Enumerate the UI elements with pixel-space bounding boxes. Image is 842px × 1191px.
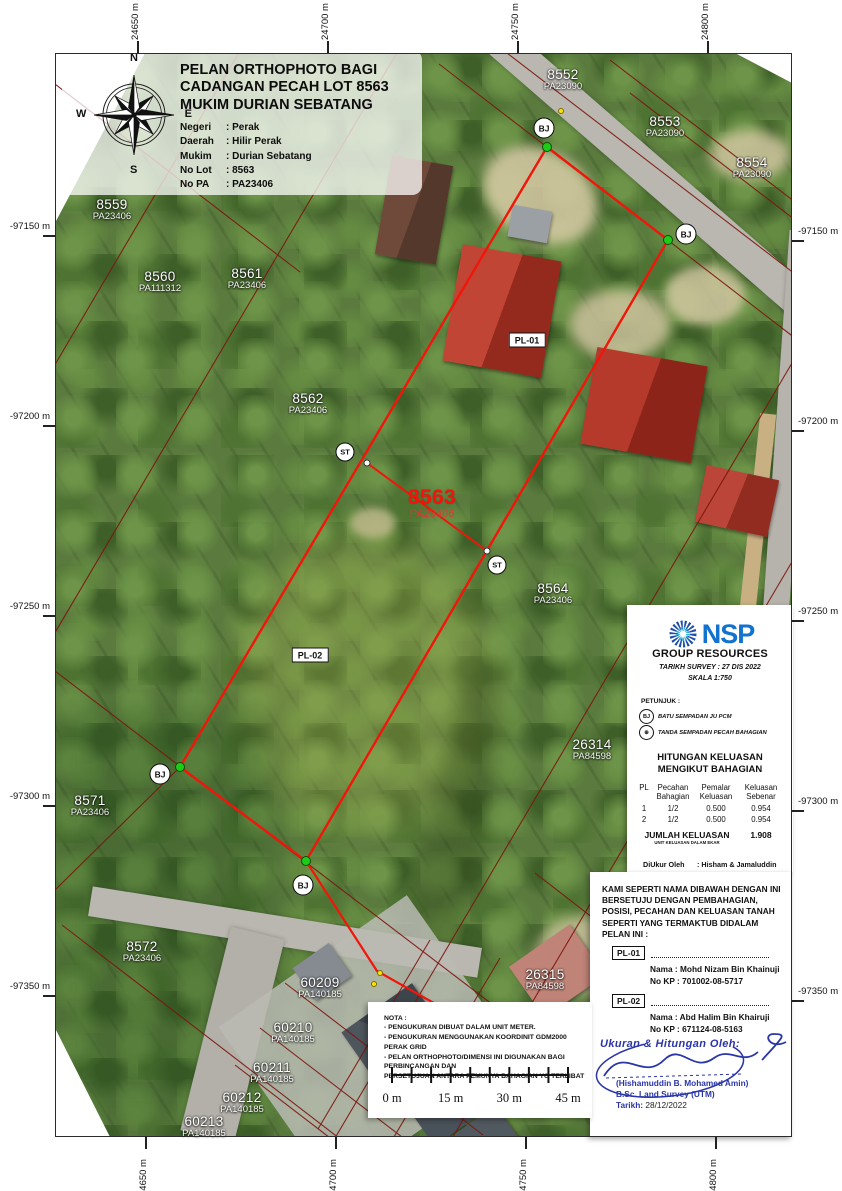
area-table-cell: 1/2 xyxy=(652,804,694,813)
axis-label-left: -97150 m xyxy=(0,221,50,232)
signature-dotline xyxy=(651,1005,769,1006)
area-table-cell: 0.500 xyxy=(694,815,738,824)
axis-tick xyxy=(715,1137,717,1149)
area-table-header: PL xyxy=(636,783,652,802)
plan-info-label: Daerah xyxy=(180,135,226,149)
axis-tick xyxy=(327,41,329,53)
survey-date: TARIKH SURVEY : 27 DIS 2022 xyxy=(627,663,793,674)
meta-row: DiUkur Oleh: Hisham & Jamaluddin xyxy=(643,859,793,871)
plan-info-value: : Perak xyxy=(226,121,259,135)
area-table-cell: 2 xyxy=(636,815,652,824)
axis-label-bottom: 24800 m xyxy=(708,1150,720,1191)
compass-star-icon xyxy=(78,56,190,174)
axis-tick xyxy=(707,41,709,53)
plan-title: PELAN ORTHOPHOTO BAGI CADANGAN PECAH LOT… xyxy=(180,62,418,114)
area-table-cell: 0.954 xyxy=(738,815,784,824)
meta-label: DiUkur Oleh xyxy=(643,859,697,871)
meta-value: : Hisham & Jamaluddin xyxy=(697,859,776,871)
plan-info-label: No PA xyxy=(180,178,226,192)
area-table-cell: 1 xyxy=(636,804,652,813)
compass-rose: N E S W xyxy=(78,56,190,174)
total-area-label: JUMLAH KELUASAN xyxy=(636,830,738,840)
axis-tick xyxy=(792,430,804,432)
area-table-title2: MENGIKUT BAHAGIAN xyxy=(627,764,793,776)
axis-label-bottom: 24750 m xyxy=(518,1150,530,1191)
total-area-value: 1.908 xyxy=(738,830,784,845)
axis-tick xyxy=(792,620,804,622)
axis-tick xyxy=(792,240,804,242)
area-table-header: Keluasan Sebenar xyxy=(738,783,784,802)
legend-item: BJBATU SEMPADAN JU PCM xyxy=(639,709,793,724)
parcel-id-box: PL-02 xyxy=(612,994,645,1008)
axis-label-bottom: 24650 m xyxy=(138,1150,150,1191)
axis-label-left: -97200 m xyxy=(0,411,50,422)
plan-info-row: Mukim: Durian Sebatang xyxy=(180,150,418,164)
axis-tick xyxy=(43,805,55,807)
area-table-header: Pecahan Bahagian xyxy=(652,783,694,802)
compass-south-label: S xyxy=(130,164,137,176)
surveyor-info-box: NSP GROUP RESOURCES TARIKH SURVEY : 27 D… xyxy=(627,605,793,872)
nota-title: NOTA : xyxy=(384,1015,592,1022)
axis-tick xyxy=(43,995,55,997)
axis-label-bottom: 24700 m xyxy=(328,1150,340,1191)
signatory-name: Nama : Abd Halim Bin Khairuji xyxy=(650,1012,770,1022)
signatory-row: PL-01 xyxy=(612,946,780,960)
plan-info-value: : Hilir Perak xyxy=(226,135,282,149)
legend-text: BATU SEMPADAN JU PCM xyxy=(658,714,732,720)
plan-info-row: Daerah: Hilir Perak xyxy=(180,135,418,149)
area-table-cell: 0.500 xyxy=(694,804,738,813)
nsp-logo-subtitle: GROUP RESOURCES xyxy=(627,648,793,660)
area-table-cell: 1/2 xyxy=(652,815,694,824)
nota-line: - PENGUKURAN MENGGUNAKAN KOORDINIT GDM20… xyxy=(384,1033,592,1053)
area-table-header: Pemalar Keluasan xyxy=(694,783,738,802)
scale-bar-label: 30 m xyxy=(497,1091,522,1106)
axis-tick xyxy=(792,1000,804,1002)
legend-symbol-icon: BJ xyxy=(639,709,654,724)
legend-text: TANDA SEMPADAN PECAH BAHAGIAN xyxy=(658,730,767,736)
scale-bar-label: 15 m xyxy=(438,1091,463,1106)
axis-label-right: -97250 m xyxy=(798,606,838,617)
axis-tick xyxy=(525,1137,527,1149)
axis-label-right: -97300 m xyxy=(798,796,838,807)
signatory-block: PL-01Nama : Mohd Nizam Bin KhainujiNo KP… xyxy=(612,946,780,986)
surveyor-qualification: B.Sc. Land Survey (UTM) xyxy=(616,1089,715,1099)
legend-title: PETUNJUK : xyxy=(641,698,793,705)
axis-tick xyxy=(43,615,55,617)
axis-label-top: 24700 m xyxy=(320,0,332,40)
axis-label-right: -97200 m xyxy=(798,416,838,427)
axis-label-top: 24800 m xyxy=(700,0,712,40)
axis-label-right: -97150 m xyxy=(798,226,838,237)
axis-label-right: -97350 m xyxy=(798,986,838,997)
legend-symbol-icon: ⊕ xyxy=(639,725,654,740)
area-table-cell: 0.954 xyxy=(738,804,784,813)
axis-tick xyxy=(43,425,55,427)
nsp-logo: NSP xyxy=(627,617,793,651)
area-table: PLPecahan BahagianPemalar KeluasanKeluas… xyxy=(627,783,793,824)
axis-tick xyxy=(335,1137,337,1149)
area-table-title: HITUNGAN KELUASAN xyxy=(627,752,793,764)
scale-bar-label: 45 m xyxy=(555,1091,580,1106)
signatory-ic: No KP : 701002-08-5717 xyxy=(650,976,780,986)
axis-tick xyxy=(792,810,804,812)
legend-item: ⊕TANDA SEMPADAN PECAH BAHAGIAN xyxy=(639,725,793,740)
survey-plan-sheet: 24650 m24700 m24750 m24800 m24650 m24700… xyxy=(0,0,842,1191)
scale-bar-label: 0 m xyxy=(382,1091,401,1106)
plan-info-label: Mukim xyxy=(180,150,226,164)
scale-bar: 0 m15 m30 m45 m xyxy=(388,1066,572,1107)
nsp-swirl-icon xyxy=(666,617,700,651)
axis-tick xyxy=(517,41,519,53)
plan-info-label: Negeri xyxy=(180,121,226,135)
nota-box: NOTA : - PENGUKURAN DIBUAT DALAM UNIT ME… xyxy=(368,1002,592,1118)
axis-label-top: 24750 m xyxy=(510,0,522,40)
nsp-logo-text: NSP xyxy=(702,619,755,650)
title-block: N E S W PELAN ORTHOPHOTO BAGI CADANGAN P… xyxy=(62,50,422,195)
axis-tick xyxy=(43,235,55,237)
axis-label-left: -97300 m xyxy=(0,791,50,802)
parcel-id-box: PL-01 xyxy=(612,946,645,960)
plan-info-value: : 8563 xyxy=(226,164,254,178)
signatory-block: PL-02Nama : Abd Halim Bin KhairujiNo KP … xyxy=(612,994,770,1034)
axis-label-left: -97350 m xyxy=(0,981,50,992)
surveyor-name: (Hishamuddin B. Mohamed Amin) xyxy=(616,1078,748,1088)
agreement-box: KAMI SEPERTI NAMA DIBAWAH DENGAN INI BER… xyxy=(590,872,792,1137)
axis-tick xyxy=(145,1137,147,1149)
scale-bar-icon xyxy=(388,1066,572,1084)
compass-west-label: W xyxy=(76,108,86,120)
surveyor-date: Tarikh: 28/12/2022 xyxy=(616,1100,687,1110)
agreement-statement: KAMI SEPERTI NAMA DIBAWAH DENGAN INI BER… xyxy=(602,884,783,940)
signature-dotline xyxy=(651,957,769,958)
compass-north-label: N xyxy=(130,52,138,64)
plan-info-value: : PA23406 xyxy=(226,178,273,192)
plan-info-fields: Negeri: PerakDaerah: Hilir PerakMukim: D… xyxy=(180,121,418,192)
nota-line: - PENGUKURAN DIBUAT DALAM UNIT METER. xyxy=(384,1023,592,1033)
axis-label-left: -97250 m xyxy=(0,601,50,612)
plan-info-label: No Lot xyxy=(180,164,226,178)
plan-info-row: Negeri: Perak xyxy=(180,121,418,135)
legend: BJBATU SEMPADAN JU PCM⊕TANDA SEMPADAN PE… xyxy=(639,709,793,740)
total-area-note: UNIT KELUASAN DALAM EKAR xyxy=(636,840,738,845)
plan-info-row: No Lot: 8563 xyxy=(180,164,418,178)
signatory-name: Nama : Mohd Nizam Bin Khainuji xyxy=(650,964,780,974)
axis-label-top: 24650 m xyxy=(130,0,142,40)
plan-scale: SKALA 1:750 xyxy=(627,674,793,685)
plan-info-value: : Durian Sebatang xyxy=(226,150,312,164)
signatory-row: PL-02 xyxy=(612,994,770,1008)
plan-info-row: No PA: PA23406 xyxy=(180,178,418,192)
axis-tick xyxy=(137,41,139,53)
